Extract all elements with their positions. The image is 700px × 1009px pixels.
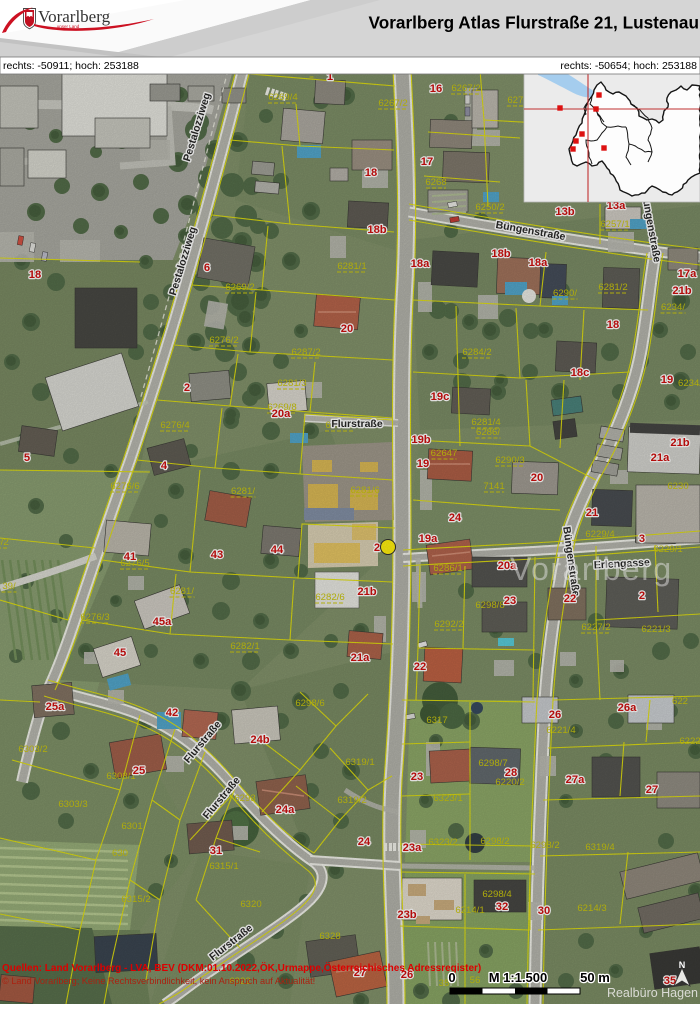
svg-text:rechts: -50654; hoch: 253188: rechts: -50654; hoch: 253188: [560, 60, 697, 72]
svg-text:unser Land: unser Land: [57, 24, 80, 29]
svg-text:Vorarlberg Atlas Flurstraße 21: Vorarlberg Atlas Flurstraße 21, Lustenau: [369, 13, 699, 33]
svg-text:Realbüro Hagen: Realbüro Hagen: [607, 986, 698, 1000]
svg-text:Quellen: Land Vorarlberg - LVA: Quellen: Land Vorarlberg - LVA, BEV (DKM…: [2, 961, 481, 974]
svg-text:rechts: -50911; hoch: 253188: rechts: -50911; hoch: 253188: [3, 60, 139, 72]
svg-text:0: 0: [448, 970, 455, 985]
svg-text:M 1:1.500: M 1:1.500: [489, 970, 548, 985]
svg-text:50 m: 50 m: [580, 970, 610, 985]
svg-text:© Land Vorarlberg; Keine Recht: © Land Vorarlberg; Keine Rechtsverbindli…: [2, 976, 315, 986]
svg-text:N: N: [679, 960, 686, 970]
